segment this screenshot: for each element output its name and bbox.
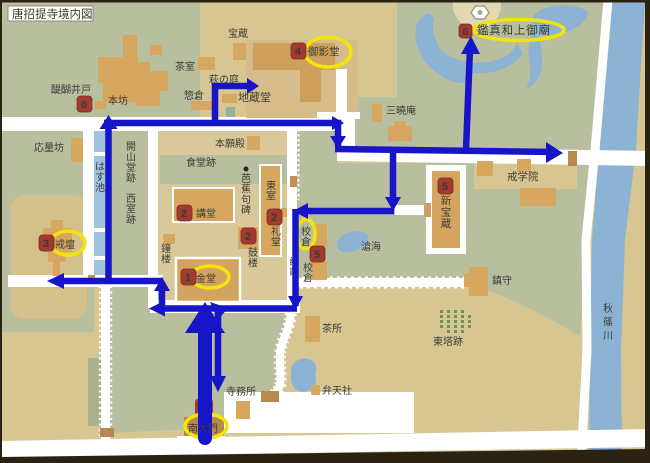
svg-text:はす池: はす池	[95, 161, 105, 194]
svg-text:東室: 東室	[266, 179, 276, 203]
svg-text:1: 1	[185, 272, 191, 284]
svg-text:唐招提寺境内図: 唐招提寺境内図	[12, 7, 93, 21]
svg-text:校倉: 校倉	[303, 261, 313, 285]
svg-text:寺務所: 寺務所	[226, 385, 256, 398]
svg-text:2: 2	[181, 208, 187, 220]
svg-text:5: 5	[442, 181, 448, 193]
svg-text:本坊: 本坊	[108, 94, 128, 107]
svg-text:礼堂: 礼堂	[271, 225, 281, 249]
svg-text:講堂: 講堂	[196, 207, 216, 220]
svg-text:西室跡: 西室跡	[126, 194, 136, 226]
svg-text:校倉: 校倉	[301, 225, 311, 249]
svg-text:戒学院: 戒学院	[507, 170, 539, 183]
svg-text:6: 6	[463, 26, 469, 38]
svg-text:2: 2	[271, 212, 277, 224]
svg-text:惣倉: 惣倉	[184, 89, 204, 102]
svg-text:芭蕉句碑: 芭蕉句碑	[241, 172, 251, 217]
svg-text:東塔跡: 東塔跡	[433, 335, 463, 348]
svg-text:食堂跡: 食堂跡	[186, 156, 216, 169]
svg-text:鎮守: 鎮守	[492, 274, 512, 287]
svg-text:滄海: 滄海	[361, 240, 381, 253]
svg-text:地蔵堂: 地蔵堂	[238, 91, 271, 104]
svg-text:戒壇: 戒壇	[55, 238, 75, 251]
svg-text:開山堂跡: 開山堂跡	[126, 141, 136, 185]
svg-text:茶所: 茶所	[322, 322, 342, 335]
svg-text:4: 4	[295, 46, 302, 58]
svg-text:5: 5	[314, 249, 320, 261]
svg-text:萩の庭: 萩の庭	[209, 73, 239, 86]
svg-text:3: 3	[43, 238, 49, 250]
svg-text:金堂: 金堂	[196, 272, 216, 285]
svg-text:醍醐井戸: 醍醐井戸	[51, 83, 91, 96]
svg-text:南大門: 南大門	[188, 422, 218, 435]
svg-text:2: 2	[245, 231, 251, 243]
svg-text:6: 6	[81, 99, 87, 111]
svg-text:宝蔵: 宝蔵	[228, 27, 248, 40]
svg-text:秋篠川: 秋篠川	[603, 302, 613, 342]
svg-text:鐘楼: 鐘楼	[161, 242, 171, 266]
svg-text:弁天社: 弁天社	[322, 384, 352, 397]
svg-text:本願殿: 本願殿	[215, 137, 245, 150]
svg-text:茶室: 茶室	[175, 60, 195, 73]
svg-text:新宝蔵: 新宝蔵	[441, 194, 452, 230]
svg-text:御影堂: 御影堂	[308, 45, 340, 58]
svg-text:応量坊: 応量坊	[34, 141, 64, 154]
svg-text:鼓楼: 鼓楼	[248, 246, 258, 270]
svg-text:三曉庵: 三曉庵	[386, 104, 416, 117]
svg-text:鑑真和上御廟: 鑑真和上御廟	[477, 23, 550, 37]
